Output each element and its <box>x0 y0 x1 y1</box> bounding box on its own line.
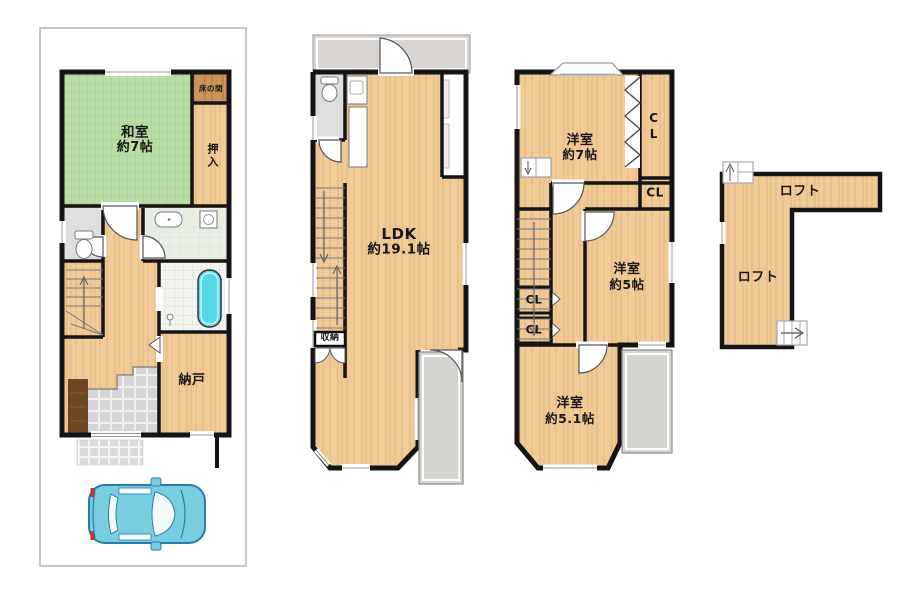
approach-tiles <box>77 440 143 465</box>
yoshitsu7-label-line1: 洋室 <box>566 134 593 148</box>
closet-b-label: CL <box>526 324 543 337</box>
toilet-fixture-2f <box>321 77 338 102</box>
loft-label-upper: ロフト <box>780 185 821 199</box>
kitchen-counter <box>347 76 367 167</box>
nando-label: 納戸 <box>178 374 205 388</box>
shuno-label: 収納 <box>320 334 339 344</box>
balcony-2f <box>419 350 463 484</box>
bay-window <box>550 63 623 75</box>
yoshitsu51-label-line1: 洋室 <box>556 397 583 411</box>
loft-ladder-upper <box>723 162 753 183</box>
accordion-closet-doors <box>625 76 640 168</box>
plan-floor2-drawing <box>310 30 475 490</box>
plan-floor1-drawing <box>39 27 247 567</box>
plan-floor3: 洋室 約7帖 CL CL CL CL 洋室 約5帖 洋室 約5.1帖 <box>512 55 677 475</box>
loft-label-lower: ロフト <box>738 271 779 285</box>
yoshitsu51-label-line2: 約5.1帖 <box>545 412 595 426</box>
washitsu-label-line1: 和室 <box>121 126 149 141</box>
closet-mid-label: CL <box>646 186 663 199</box>
entrance-step <box>68 379 88 433</box>
balcony-3f <box>622 350 672 453</box>
ldk-label-line1: LDK <box>381 226 416 243</box>
plan-floor2: LDK 約19.1帖 収納 <box>310 30 475 490</box>
loft-ladder-box <box>521 158 551 177</box>
yoshitsu7-label-line2: 約7帖 <box>562 148 597 162</box>
toilet-tank <box>75 231 93 239</box>
closet-right-label: CL <box>646 111 659 143</box>
oshiire-label: 押入 <box>206 143 218 169</box>
car-mirror <box>151 478 161 486</box>
loft-ladder-lower <box>777 321 807 345</box>
plan-floor1: 和室 約7帖 床の間 押入 納戸 <box>39 27 247 567</box>
yoshitsu5-label-line1: 洋室 <box>613 263 640 277</box>
tokonoma-label: 床の間 <box>199 85 223 93</box>
closet-a-label: CL <box>526 294 543 307</box>
plan-loft: ロフト ロフト <box>715 158 915 358</box>
washitsu-label-line2: 約7帖 <box>117 141 154 155</box>
floorplan-page: 和室 約7帖 床の間 押入 納戸 <box>0 0 920 593</box>
washing-machine <box>200 211 217 228</box>
yoshitsu5-label-line2: 約5帖 <box>609 278 644 292</box>
toilet-bowl <box>76 240 92 259</box>
car-mirror <box>151 542 161 550</box>
car-top-view <box>89 478 205 550</box>
ldk-label-line2: 約19.1帖 <box>367 243 430 258</box>
